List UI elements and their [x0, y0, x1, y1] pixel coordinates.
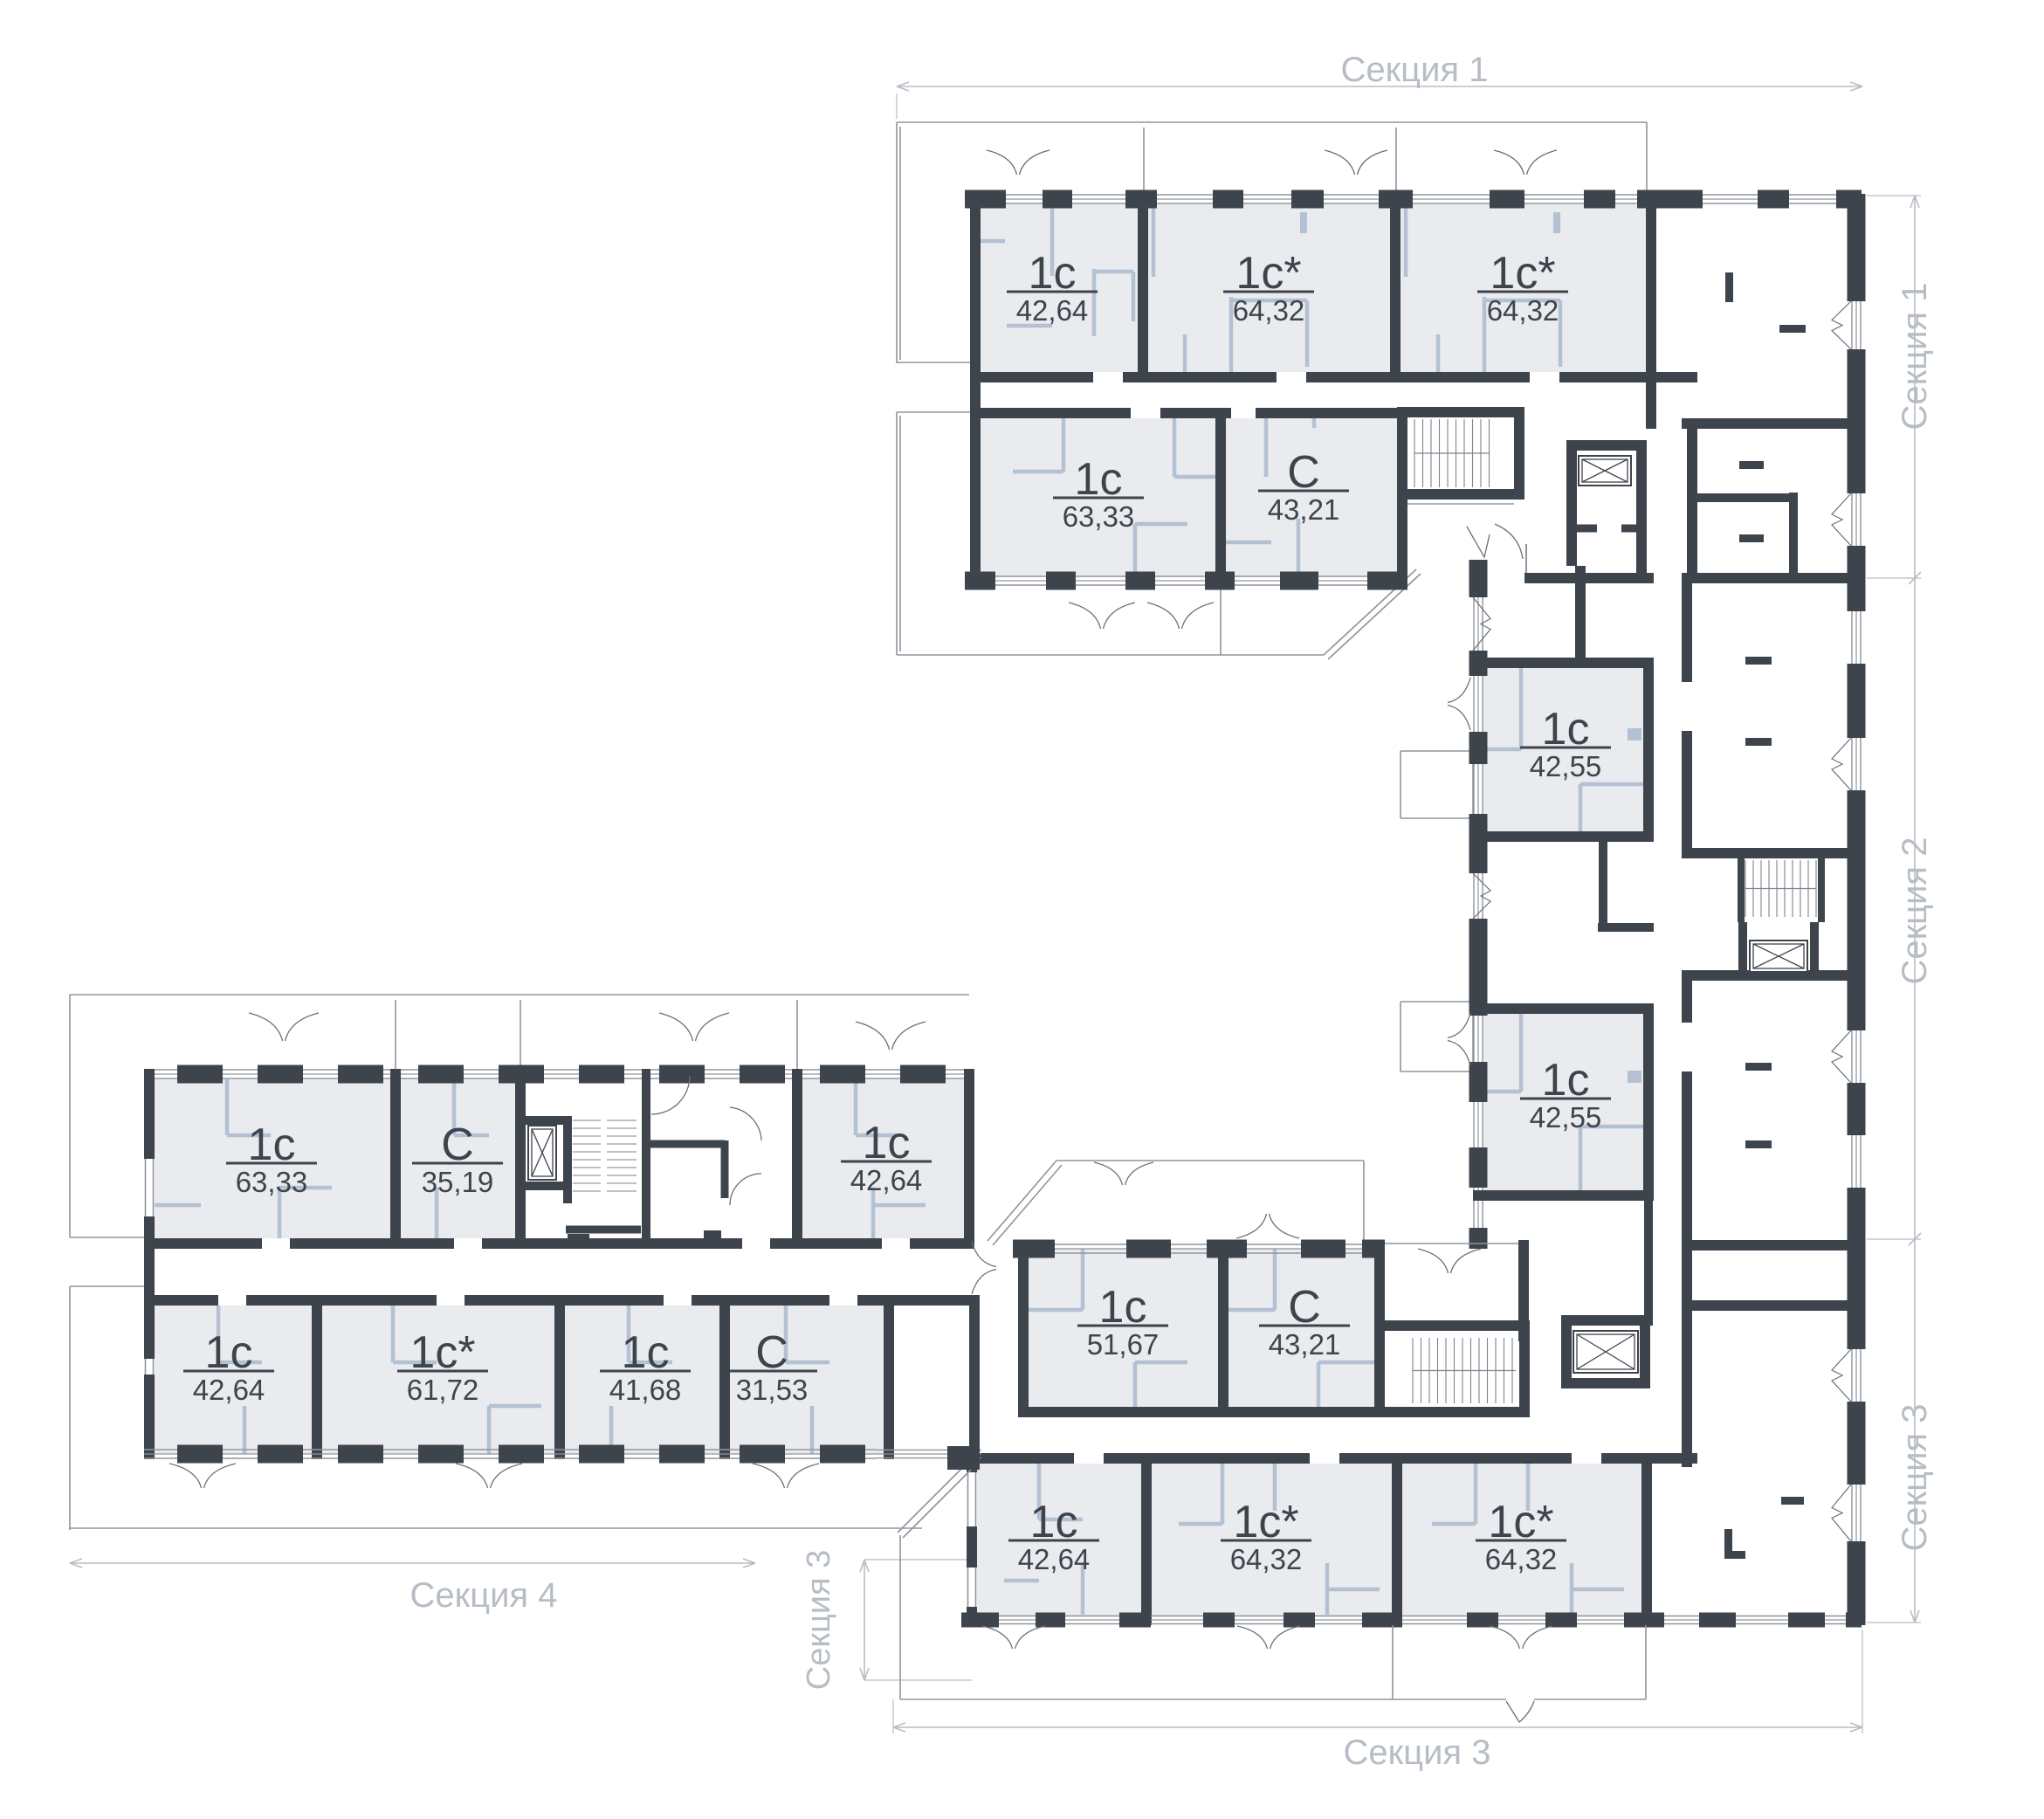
- svg-text:42,64: 42,64: [850, 1164, 923, 1196]
- svg-text:42,64: 42,64: [1018, 1543, 1091, 1575]
- svg-text:Секция 3: Секция 3: [1896, 1404, 1934, 1552]
- svg-text:64,32: 64,32: [1233, 294, 1305, 327]
- svg-text:Секция 4: Секция 4: [410, 1576, 558, 1615]
- svg-text:42,64: 42,64: [193, 1374, 265, 1406]
- svg-text:35,19: 35,19: [422, 1166, 494, 1198]
- svg-text:41,68: 41,68: [609, 1374, 682, 1406]
- svg-text:Секция 3: Секция 3: [801, 1550, 837, 1690]
- svg-text:Секция 1: Секция 1: [1341, 51, 1489, 89]
- svg-text:61,72: 61,72: [407, 1374, 479, 1406]
- svg-text:64,32: 64,32: [1485, 1543, 1558, 1575]
- svg-text:64,32: 64,32: [1230, 1543, 1303, 1575]
- svg-text:42,55: 42,55: [1530, 750, 1602, 782]
- svg-text:Секция 1: Секция 1: [1896, 283, 1934, 431]
- svg-text:64,32: 64,32: [1487, 294, 1559, 327]
- svg-text:43,21: 43,21: [1269, 1328, 1341, 1361]
- svg-text:Секция 2: Секция 2: [1896, 837, 1934, 985]
- svg-text:63,33: 63,33: [1063, 500, 1135, 533]
- svg-text:63,33: 63,33: [236, 1166, 308, 1198]
- svg-text:43,21: 43,21: [1268, 493, 1340, 526]
- svg-text:51,67: 51,67: [1087, 1328, 1160, 1361]
- svg-text:Секция 3: Секция 3: [1344, 1733, 1491, 1772]
- svg-text:42,64: 42,64: [1016, 294, 1089, 327]
- svg-text:31,53: 31,53: [736, 1374, 809, 1406]
- svg-text:42,55: 42,55: [1530, 1101, 1602, 1133]
